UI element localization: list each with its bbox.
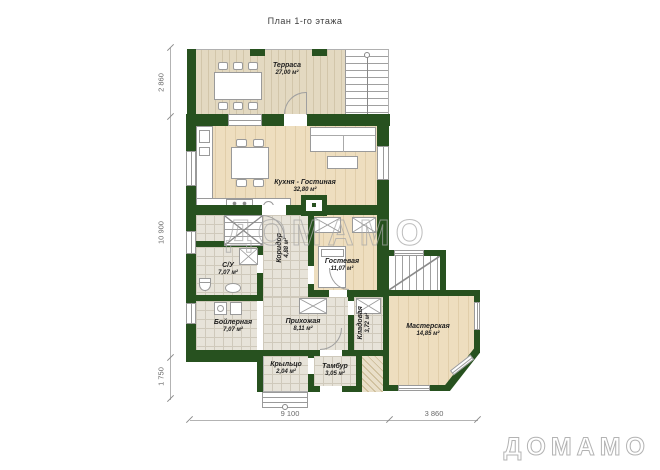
room-area: 7,07 м² xyxy=(204,327,262,334)
terrace-stairs xyxy=(345,50,388,115)
room-area: 2,04 м² xyxy=(264,369,308,376)
washing-machine xyxy=(214,302,227,315)
toilet xyxy=(199,278,211,291)
hallway-wardrobe xyxy=(299,298,327,314)
dining-chair xyxy=(253,139,264,147)
room-area: 7,07 м² xyxy=(206,270,250,277)
dining-chair xyxy=(236,179,247,187)
wc-west-window xyxy=(186,231,196,254)
dim-left-middle: 10 900 xyxy=(157,213,166,253)
terrace-door-leaf xyxy=(306,92,307,115)
storage-door-opening xyxy=(348,301,354,315)
terrace-west-wall xyxy=(187,49,196,116)
dimension-tick xyxy=(167,395,174,402)
boiler-west-window xyxy=(186,303,196,324)
room-label-storage: Кладовая 3,72 м² xyxy=(357,300,373,346)
dim-left-bottom: 1 750 xyxy=(157,357,166,397)
room-label-wc: С/У 7,07 м² xyxy=(206,262,250,278)
exterior-deck-hatch xyxy=(362,356,383,392)
fridge xyxy=(199,130,210,143)
workshop-east-window xyxy=(474,302,480,330)
terrace-chair xyxy=(233,102,243,110)
room-label-boiler: Бойлерная 7,07 м² xyxy=(204,319,262,335)
room-label-guest: Гостевая 11,07 м² xyxy=(312,258,372,274)
stairs-start-marker xyxy=(364,52,370,58)
entry-door-opening xyxy=(320,386,342,392)
room-label-vestibule: Тамбур 3,05 м² xyxy=(314,363,356,379)
dim-bottom-left: 9 100 xyxy=(265,409,315,418)
dining-chair xyxy=(236,139,247,147)
left-dimension-line xyxy=(170,48,171,400)
dim-left-top: 2 860 xyxy=(157,63,166,103)
room-area: 3,72 м² xyxy=(366,300,373,346)
kitchen-appliance xyxy=(199,147,210,156)
watermark-text: ДОМАМО xyxy=(226,212,430,254)
toilet-tank-line xyxy=(200,282,210,283)
wc-sink xyxy=(225,283,241,293)
sofa xyxy=(310,127,376,152)
room-area: 8,11 м² xyxy=(272,326,334,333)
terrace-chair xyxy=(218,102,228,110)
closet-cross-lines xyxy=(300,299,326,313)
terrace-chair xyxy=(218,62,228,70)
living-east-window xyxy=(377,146,389,180)
room-label-porch: Крыльцо 2,04 м² xyxy=(264,361,308,377)
staircase-diagonal-line xyxy=(389,256,440,290)
upper-hall-tile xyxy=(196,215,224,241)
stairs-direction-line xyxy=(367,56,368,115)
boiler-unit xyxy=(230,302,242,315)
brand-logo: ДОМАМО xyxy=(504,433,650,462)
kitchen-west-window xyxy=(186,151,196,186)
kitchen-counter-vertical xyxy=(196,126,213,199)
workshop-south-window xyxy=(398,385,430,391)
terrace-wall-stub xyxy=(312,49,327,56)
page-title: План 1-го этажа xyxy=(225,16,385,26)
terrace-door-opening xyxy=(284,114,307,126)
coffee-table xyxy=(327,156,358,169)
washer-drum xyxy=(217,305,224,312)
room-label-terrace: Терраса 27,00 м² xyxy=(255,62,319,78)
terrace-chair xyxy=(248,102,258,110)
terrace-chair xyxy=(233,62,243,70)
terrace-wall-stub xyxy=(250,49,265,56)
sofa-seat-divider xyxy=(343,135,344,152)
south-wall-west xyxy=(186,350,263,362)
floor-plan-page: План 1-го этажа Терраса 27,00 м² xyxy=(0,0,660,470)
room-label-workshop: Мастерская 14,85 м² xyxy=(394,323,462,339)
room-label-kitchen-living: Кухня - Гостиная 32,80 м² xyxy=(262,179,348,195)
bottom-dimension-line xyxy=(190,420,478,421)
room-area: 27,00 м² xyxy=(255,70,319,77)
room-area: 11,07 м² xyxy=(312,266,372,273)
room-area: 3,05 м² xyxy=(314,371,356,378)
wing-staircase xyxy=(389,256,440,290)
dining-table xyxy=(231,147,269,179)
room-label-hallway: Прихожая 8,11 м² xyxy=(272,318,334,334)
kitchen-north-window xyxy=(228,114,262,126)
room-area: 32,80 м² xyxy=(262,187,348,194)
dim-bottom-right: 3 860 xyxy=(409,409,459,418)
guest-south-door-opening xyxy=(329,290,347,297)
room-area: 14,85 м² xyxy=(394,331,462,338)
dimension-tick xyxy=(474,416,481,423)
fireplace-core xyxy=(312,203,316,207)
